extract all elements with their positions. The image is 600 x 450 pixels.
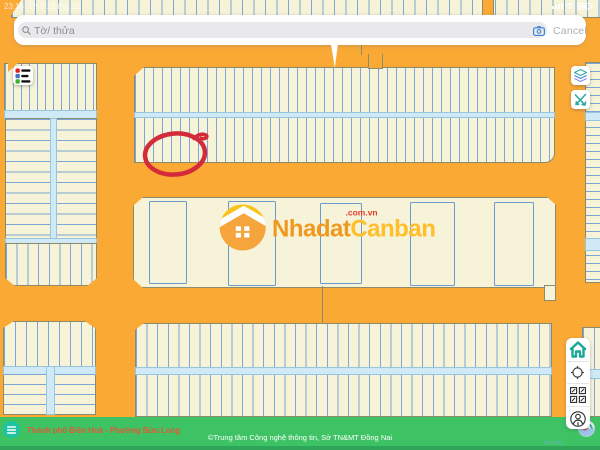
svg-text:NhadatCanban: NhadatCanban [272,215,435,242]
svg-text:.com.vn: .com.vn [346,208,378,218]
